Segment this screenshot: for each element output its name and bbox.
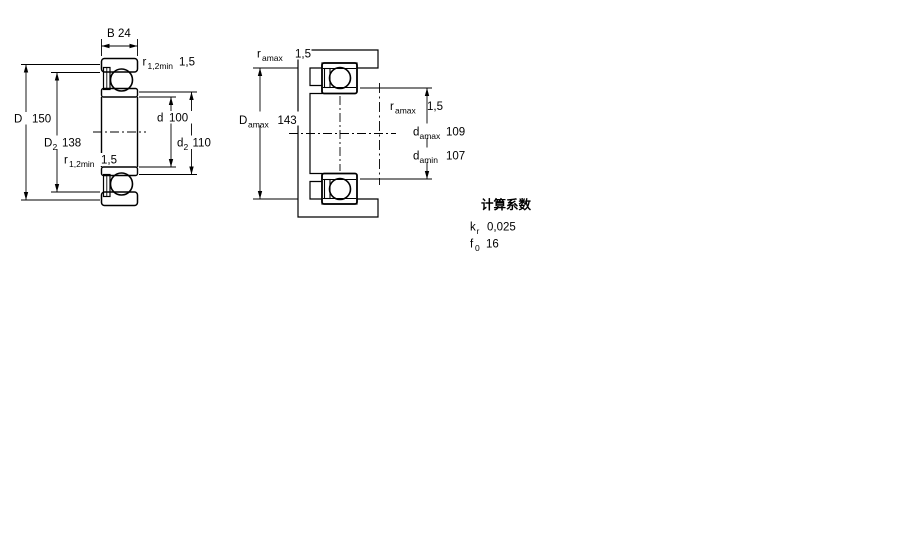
label-D2-sym: D xyxy=(44,138,52,150)
bearing-drawing xyxy=(93,59,146,206)
label-r12top-sym: r xyxy=(143,57,147,69)
label-r12top-value: 1,5 xyxy=(179,57,195,69)
label-damin-sub: amin xyxy=(420,155,439,165)
label-B-sym: B xyxy=(107,28,115,40)
label-B-value: 24 xyxy=(118,28,131,40)
label-damax-sub: amax xyxy=(420,131,442,141)
label-r12top-sub: 1,2min xyxy=(148,61,174,71)
label-damax-sym: d xyxy=(413,127,419,139)
factor-f0-value: 16 xyxy=(486,239,499,251)
abutment-drawing xyxy=(289,50,396,217)
factors-title: 计算系数 xyxy=(481,197,532,212)
label-D-sym: D xyxy=(14,114,22,126)
label-Da-sym: D xyxy=(239,115,247,127)
arrow-D-top xyxy=(24,65,28,73)
ball-bottom xyxy=(330,179,351,200)
arrow-da-bottom xyxy=(425,171,429,179)
arrow-d-top xyxy=(169,97,173,105)
figure-bearing-cross-section: B 24 r 1,2min 1,5 D 150 D 2 138 d 100 d … xyxy=(12,28,215,206)
arrow-Da-top xyxy=(258,68,262,76)
arrow-da-top xyxy=(425,88,429,96)
label-damin-sym: d xyxy=(413,151,419,163)
arrow-D2-top xyxy=(55,73,59,81)
label-ramid-sym: r xyxy=(390,101,394,113)
label-r12mid-sub: 1,2min xyxy=(69,159,95,169)
label-D2-value: 138 xyxy=(62,138,81,150)
arrow-D-bottom xyxy=(24,192,28,200)
label-ratop-sub: amax xyxy=(262,53,284,63)
factor-kr-sym: k xyxy=(470,222,476,234)
label-d2-sym: d xyxy=(177,138,183,150)
label-Da-sub: amax xyxy=(248,120,270,130)
arrow-d2-bottom xyxy=(189,167,193,175)
figure-abutment-dimensions: r amax 1,5 D amax 143 r amax 1,5 d amax … xyxy=(237,46,469,218)
label-ratop-sym: r xyxy=(257,49,261,61)
arrow-D2-bottom xyxy=(55,184,59,192)
label-damin-value: 107 xyxy=(446,151,465,163)
factor-kr-sub: r xyxy=(477,226,480,236)
arrow-B-left xyxy=(102,44,110,48)
factor-f0-sub: 0 xyxy=(475,243,480,253)
label-damax-value: 109 xyxy=(446,127,465,139)
label-d2-sub: 2 xyxy=(184,142,189,152)
figure1-labels: B 24 r 1,2min 1,5 D 150 D 2 138 d 100 d … xyxy=(12,28,215,169)
technical-drawing: B 24 r 1,2min 1,5 D 150 D 2 138 d 100 d … xyxy=(0,0,900,560)
label-d-value: 100 xyxy=(169,113,188,125)
label-r12mid-value: 1,5 xyxy=(101,155,117,167)
label-ramid-value: 1,5 xyxy=(427,101,443,113)
drawing-canvas: B 24 r 1,2min 1,5 D 150 D 2 138 d 100 d … xyxy=(0,0,900,560)
arrow-d-bottom xyxy=(169,159,173,167)
ball-top xyxy=(330,68,351,89)
label-D2-sub: 2 xyxy=(53,142,58,152)
label-Da-value: 143 xyxy=(278,115,297,127)
arrow-B-right xyxy=(130,44,138,48)
calculation-factors: 计算系数 k r 0,025 f 0 16 xyxy=(470,197,532,253)
label-d2-value: 110 xyxy=(193,138,211,150)
label-D-value: 150 xyxy=(32,114,51,126)
label-ratop-value: 1,5 xyxy=(295,49,311,61)
arrow-d2-top xyxy=(189,92,193,100)
factor-f0-sym: f xyxy=(470,239,474,251)
factor-kr-value: 0,025 xyxy=(487,222,516,234)
label-d-sym: d xyxy=(157,113,163,125)
arrow-Da-bottom xyxy=(258,191,262,199)
label-r12mid-sym: r xyxy=(64,155,68,167)
label-ramid-sub: amax xyxy=(395,106,417,116)
